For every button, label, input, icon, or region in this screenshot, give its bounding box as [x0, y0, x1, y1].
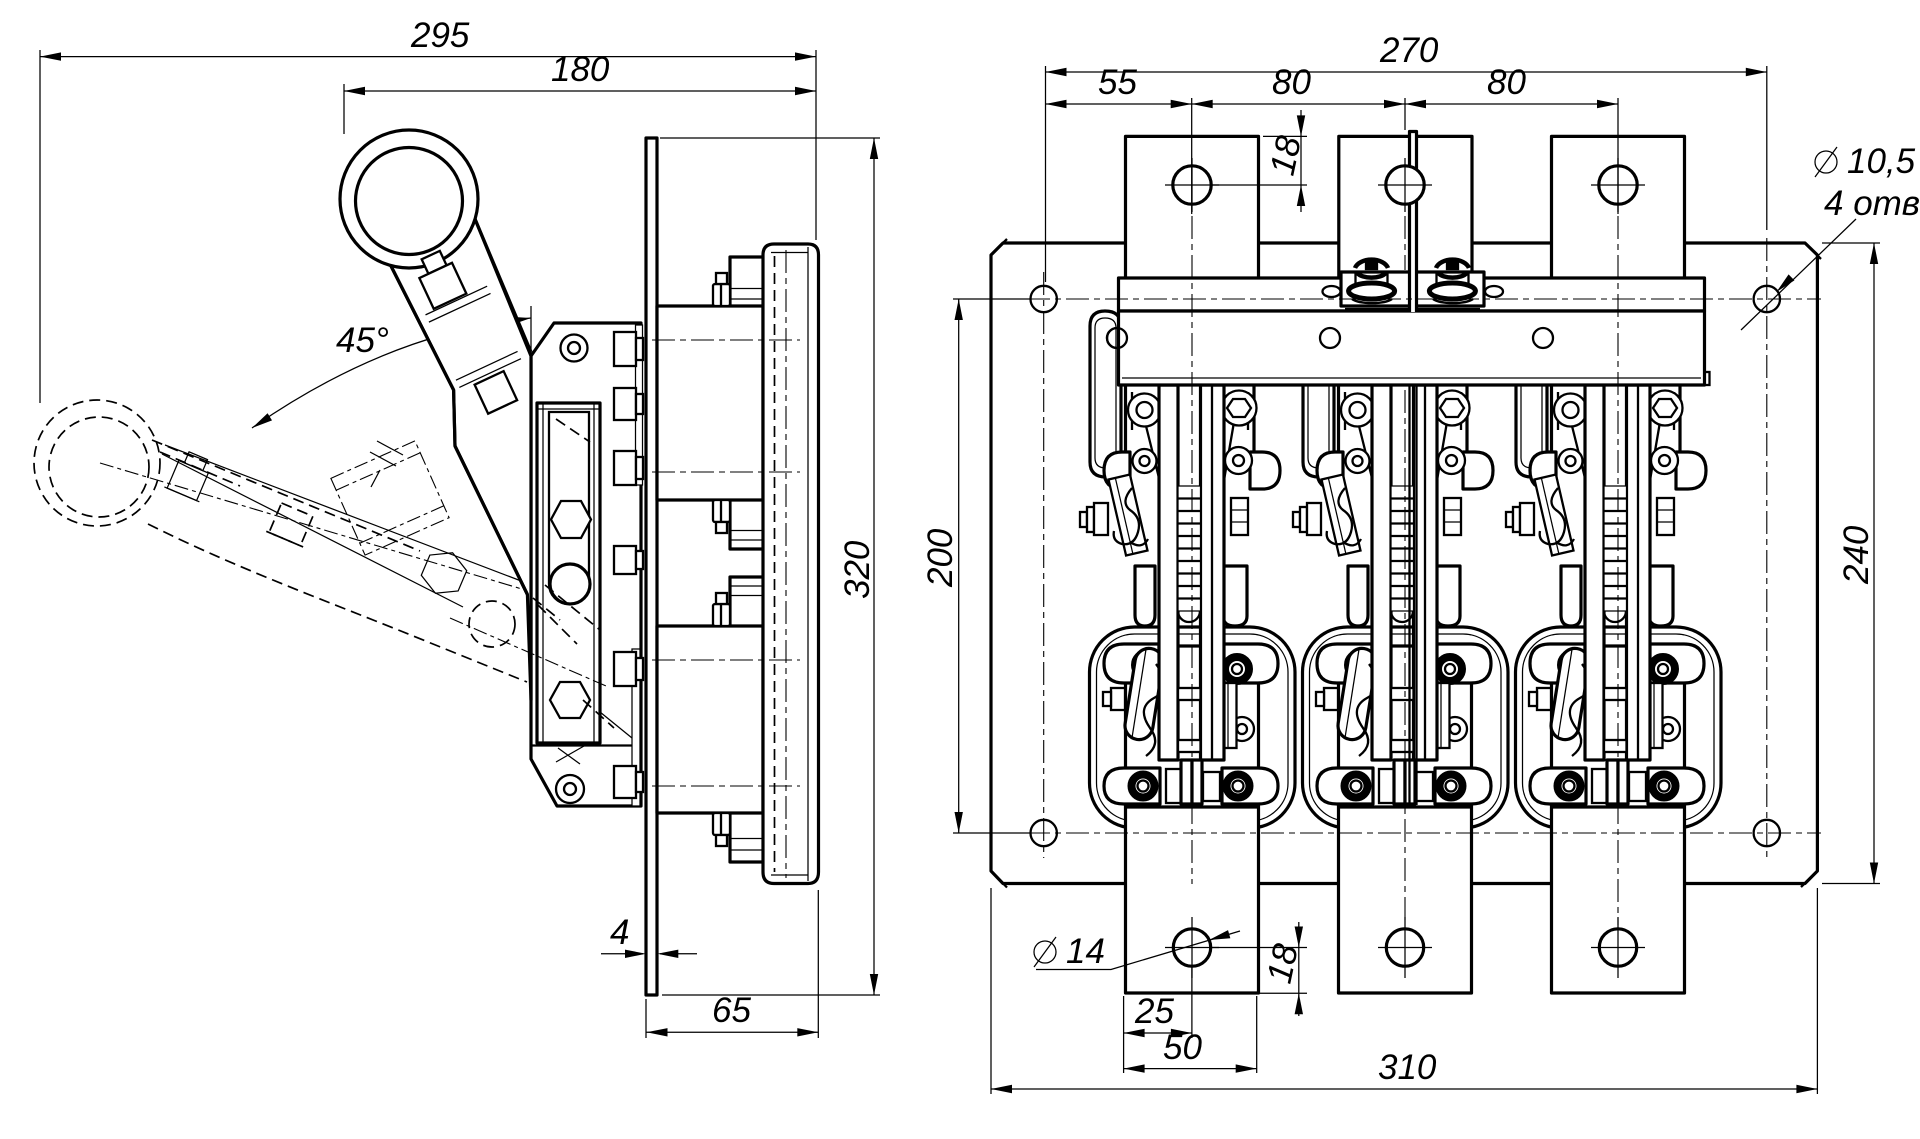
svg-text:270: 270 [1379, 31, 1439, 70]
svg-text:80: 80 [1272, 63, 1311, 102]
svg-text:80: 80 [1487, 63, 1526, 102]
svg-text:295: 295 [410, 16, 470, 55]
svg-text:240: 240 [1837, 525, 1876, 585]
svg-text:180: 180 [551, 50, 610, 89]
svg-text:10,5: 10,5 [1847, 142, 1916, 181]
svg-text:200: 200 [921, 528, 960, 588]
svg-text:4: 4 [610, 913, 629, 952]
svg-text:55: 55 [1098, 63, 1137, 102]
svg-text:65: 65 [712, 991, 751, 1030]
svg-text:320: 320 [838, 540, 877, 599]
svg-text:14: 14 [1066, 932, 1105, 971]
svg-text:310: 310 [1378, 1048, 1437, 1087]
svg-text:4 отв: 4 отв [1824, 184, 1920, 223]
svg-text:25: 25 [1134, 992, 1174, 1031]
svg-text:45°: 45° [336, 321, 389, 360]
svg-text:50: 50 [1163, 1028, 1202, 1067]
